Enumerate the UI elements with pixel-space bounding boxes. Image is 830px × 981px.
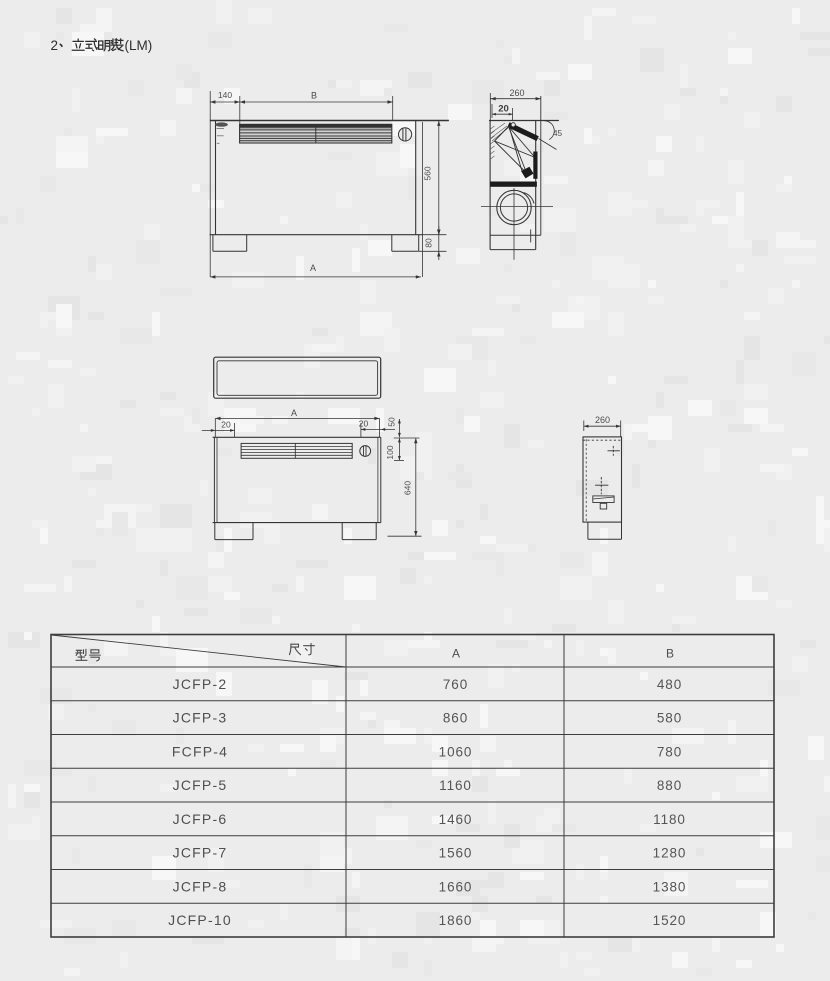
svg-text:80: 80 [424, 238, 434, 248]
svg-text:B: B [666, 647, 674, 661]
svg-text:JCFP-7: JCFP-7 [173, 845, 228, 861]
svg-text:1520: 1520 [653, 913, 687, 928]
svg-text:FCFP-4: FCFP-4 [172, 743, 228, 759]
svg-text:JCFP-2: JCFP-2 [173, 676, 228, 692]
svg-text:50: 50 [386, 417, 396, 427]
svg-text:1560: 1560 [439, 846, 473, 861]
svg-text:45: 45 [553, 129, 563, 138]
svg-text:20: 20 [498, 104, 509, 115]
svg-text:(LM): (LM) [125, 38, 153, 53]
svg-text:1280: 1280 [653, 846, 687, 861]
svg-text:1660: 1660 [439, 879, 473, 894]
svg-text:A: A [452, 647, 460, 661]
svg-text:1180: 1180 [653, 812, 686, 827]
svg-text:560: 560 [423, 166, 433, 180]
svg-text:20: 20 [359, 418, 369, 428]
svg-text:480: 480 [657, 677, 682, 692]
svg-text:B: B [311, 91, 317, 101]
svg-text:2: 2 [51, 38, 59, 53]
svg-text:JCFP-6: JCFP-6 [173, 811, 228, 827]
svg-text:A: A [291, 408, 297, 418]
svg-text:JCFP-5: JCFP-5 [173, 777, 228, 793]
svg-text:860: 860 [443, 711, 468, 726]
svg-text:880: 880 [657, 778, 682, 793]
svg-text:780: 780 [657, 744, 682, 759]
svg-text:1460: 1460 [439, 812, 473, 827]
svg-text:140: 140 [218, 90, 232, 100]
svg-text:260: 260 [595, 415, 610, 425]
svg-text:760: 760 [443, 677, 468, 692]
svg-text:JCFP-8: JCFP-8 [173, 878, 228, 894]
svg-text:260: 260 [509, 88, 524, 98]
svg-text:JCFP-10: JCFP-10 [168, 912, 232, 928]
svg-text:580: 580 [657, 711, 682, 726]
svg-text:1860: 1860 [439, 913, 473, 928]
svg-text:20: 20 [221, 419, 231, 429]
svg-text:1380: 1380 [653, 879, 687, 894]
svg-text:1160: 1160 [439, 778, 472, 793]
svg-text:640: 640 [403, 481, 413, 495]
svg-text:100: 100 [385, 445, 395, 459]
svg-text:JCFP-3: JCFP-3 [173, 710, 228, 726]
svg-text:1060: 1060 [439, 744, 473, 759]
svg-text:A: A [310, 263, 316, 273]
